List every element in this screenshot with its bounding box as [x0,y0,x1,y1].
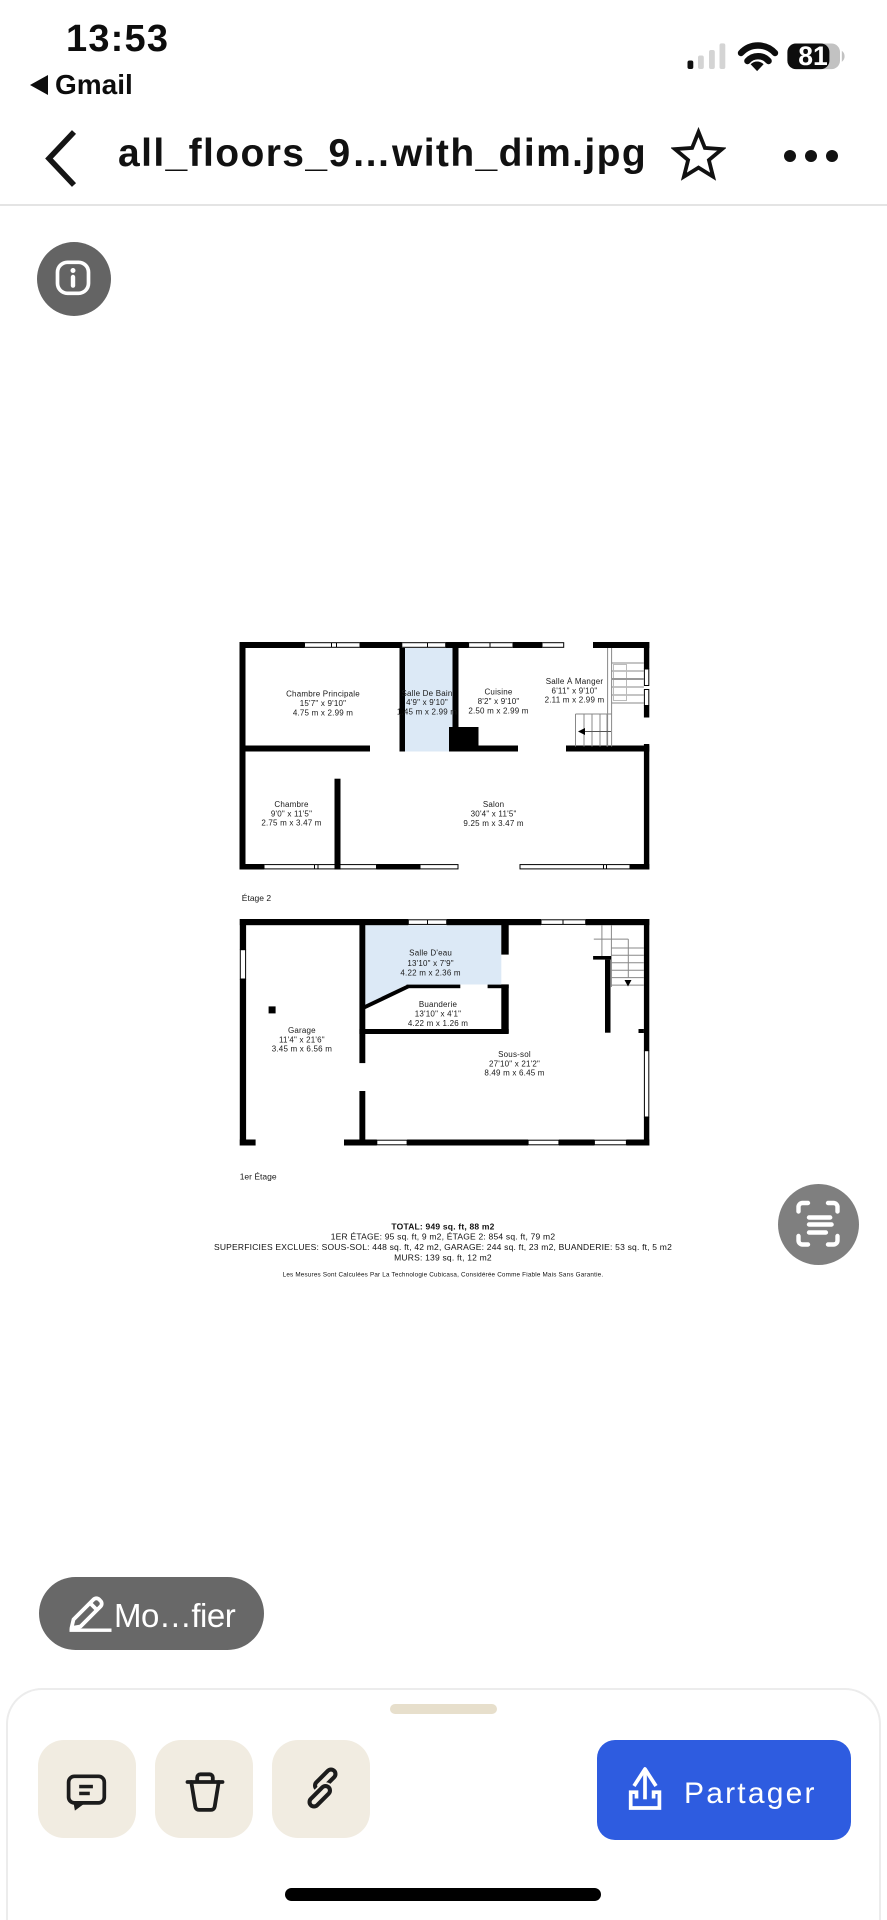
svg-text:Salle De Bain: Salle De Bain [401,689,452,698]
svg-text:13'10" x 4'1": 13'10" x 4'1" [415,1010,461,1019]
svg-text:Chambre: Chambre [274,800,309,809]
svg-text:Étage 2: Étage 2 [242,893,272,903]
svg-text:4.75 m x 2.99 m: 4.75 m x 2.99 m [293,708,353,717]
svg-text:8.49 m x 6.45 m: 8.49 m x 6.45 m [484,1069,544,1078]
svg-text:Salon: Salon [483,800,504,809]
svg-text:8'2" x 9'10": 8'2" x 9'10" [478,697,520,706]
svg-text:2.50 m x 2.99 m: 2.50 m x 2.99 m [468,707,528,716]
svg-text:30'4" x 11'5": 30'4" x 11'5" [471,810,517,819]
svg-text:Salle D'eau: Salle D'eau [409,949,452,958]
svg-text:27'10" x 21'2": 27'10" x 21'2" [489,1059,540,1068]
svg-text:15'7" x 9'10": 15'7" x 9'10" [300,699,346,708]
svg-text:4'9" x 9'10": 4'9" x 9'10" [406,698,448,707]
svg-text:TOTAL: 949 sq. ft, 88 m2: TOTAL: 949 sq. ft, 88 m2 [391,1221,494,1231]
svg-text:1er Étage: 1er Étage [240,1172,277,1182]
svg-text:13'10" x 7'9": 13'10" x 7'9" [407,959,453,968]
svg-text:SUPERFICIES EXCLUES: SOUS-SOL:: SUPERFICIES EXCLUES: SOUS-SOL: 448 sq. f… [214,1242,672,1252]
svg-text:3.45 m x 6.56 m: 3.45 m x 6.56 m [272,1045,332,1054]
svg-text:Buanderie: Buanderie [419,1000,458,1009]
svg-text:MURS: 139 sq. ft, 12 m2: MURS: 139 sq. ft, 12 m2 [394,1253,492,1263]
svg-text:Cuisine: Cuisine [484,688,512,697]
svg-text:9.25 m x 3.47 m: 9.25 m x 3.47 m [463,819,523,828]
svg-text:4.22 m x 1.26 m: 4.22 m x 1.26 m [408,1019,468,1028]
svg-text:Garage: Garage [288,1026,316,1035]
svg-text:2.11 m x 2.99 m: 2.11 m x 2.99 m [545,696,605,705]
svg-text:Sous-sol: Sous-sol [498,1050,531,1059]
svg-text:9'0" x 11'5": 9'0" x 11'5" [271,810,312,819]
svg-text:1ER ÉTAGE: 95 sq. ft, 9 m2, ÉT: 1ER ÉTAGE: 95 sq. ft, 9 m2, ÉTAGE 2: 854… [331,1232,556,1242]
svg-text:2.75 m x 3.47 m: 2.75 m x 3.47 m [261,819,321,828]
svg-text:1.45 m x 2.99 m: 1.45 m x 2.99 m [397,707,457,716]
svg-text:Les Mesures Sont Calculées Par: Les Mesures Sont Calculées Par La Techno… [283,1272,604,1279]
svg-text:6'11" x 9'10": 6'11" x 9'10" [552,686,598,695]
svg-text:Chambre Principale: Chambre Principale [286,690,360,699]
svg-text:11'4" x 21'6": 11'4" x 21'6" [279,1035,325,1044]
svg-text:Salle À Manger: Salle À Manger [546,677,604,686]
svg-text:4.22 m x 2.36 m: 4.22 m x 2.36 m [400,969,460,978]
